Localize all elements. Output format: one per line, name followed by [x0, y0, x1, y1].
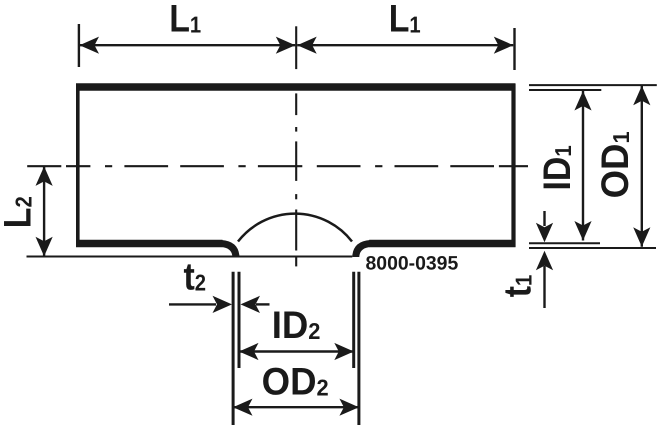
svg-text:OD1: OD1 — [594, 131, 637, 198]
svg-text:ID1: ID1 — [536, 145, 579, 190]
svg-text:t1: t1 — [496, 275, 539, 298]
svg-text:L1: L1 — [389, 0, 421, 41]
svg-text:8000-0395: 8000-0395 — [366, 253, 459, 275]
svg-text:ID2: ID2 — [272, 304, 321, 347]
svg-text:L1: L1 — [169, 0, 201, 41]
svg-text:L2: L2 — [0, 196, 40, 228]
svg-text:t2: t2 — [184, 256, 207, 299]
svg-text:OD2: OD2 — [262, 361, 329, 404]
